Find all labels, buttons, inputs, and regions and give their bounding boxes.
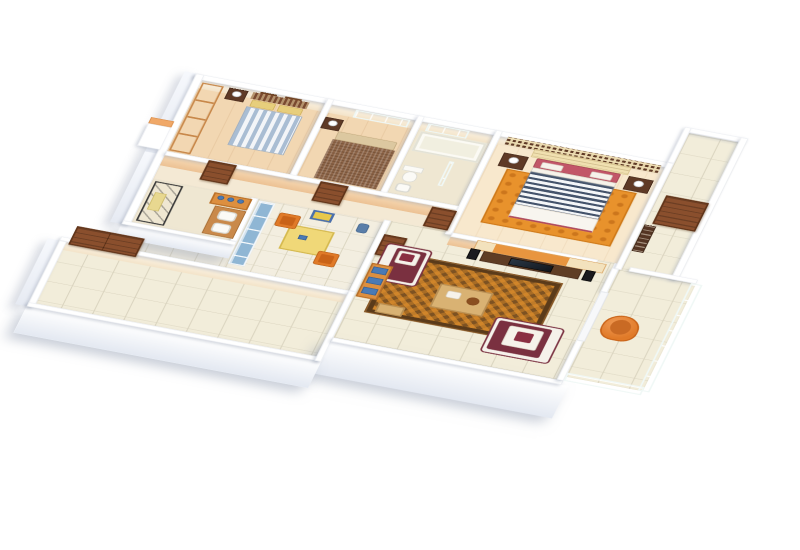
floor-plan-render [0,0,800,550]
